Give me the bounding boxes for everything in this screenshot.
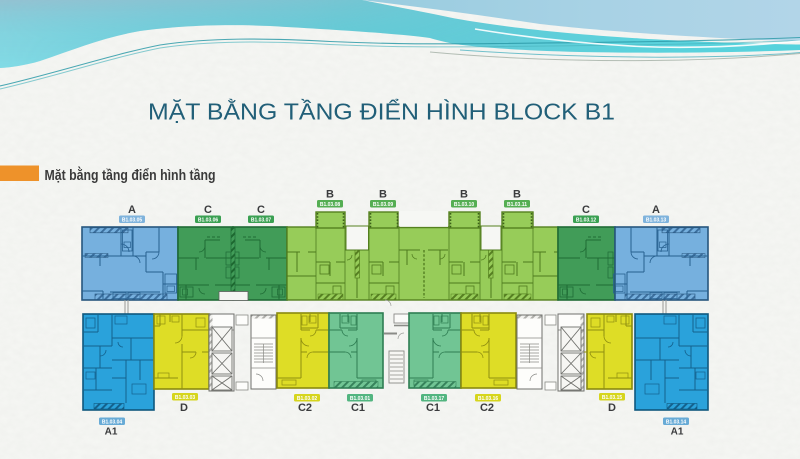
svg-text:C2: C2 [480,402,494,414]
svg-text:B1.03.05: B1.03.05 [122,218,143,224]
svg-text:C: C [257,204,265,216]
svg-text:B1.03.07: B1.03.07 [251,218,272,224]
svg-text:B1.03.03: B1.03.03 [175,395,196,401]
svg-text:B1.03.14: B1.03.14 [666,420,687,426]
svg-text:B1.03.15: B1.03.15 [602,395,623,401]
svg-text:B: B [326,189,334,201]
svg-text:C: C [204,204,212,216]
svg-text:MẶT BẰNG TẦNG ĐIỂN HÌNH BLOCK: MẶT BẰNG TẦNG ĐIỂN HÌNH BLOCK B1 [148,98,615,125]
svg-text:B1.03.12: B1.03.12 [576,218,597,224]
svg-text:B1.03.10: B1.03.10 [454,202,475,208]
svg-text:B1.03.09: B1.03.09 [373,202,394,208]
svg-text:Mặt bằng tầng điển hình tầng: Mặt bằng tầng điển hình tầng [45,166,216,184]
svg-text:D: D [180,402,188,414]
svg-text:D: D [608,402,616,414]
svg-text:A1: A1 [105,427,118,438]
svg-text:C1: C1 [426,402,440,414]
svg-text:A1: A1 [671,427,684,438]
svg-text:C1: C1 [351,402,365,414]
svg-text:B1.03.06: B1.03.06 [198,218,219,224]
svg-text:B1.03.11: B1.03.11 [507,202,527,208]
svg-text:B1.03.13: B1.03.13 [646,218,667,224]
svg-text:B: B [513,189,521,201]
svg-text:B1.03.04: B1.03.04 [102,420,123,426]
svg-text:A: A [128,204,136,216]
svg-text:C: C [582,204,590,216]
svg-text:C2: C2 [298,402,312,414]
svg-text:B1.03.08: B1.03.08 [320,202,341,208]
svg-text:A: A [652,204,660,216]
svg-text:B: B [460,189,468,201]
svg-text:B: B [379,189,387,201]
